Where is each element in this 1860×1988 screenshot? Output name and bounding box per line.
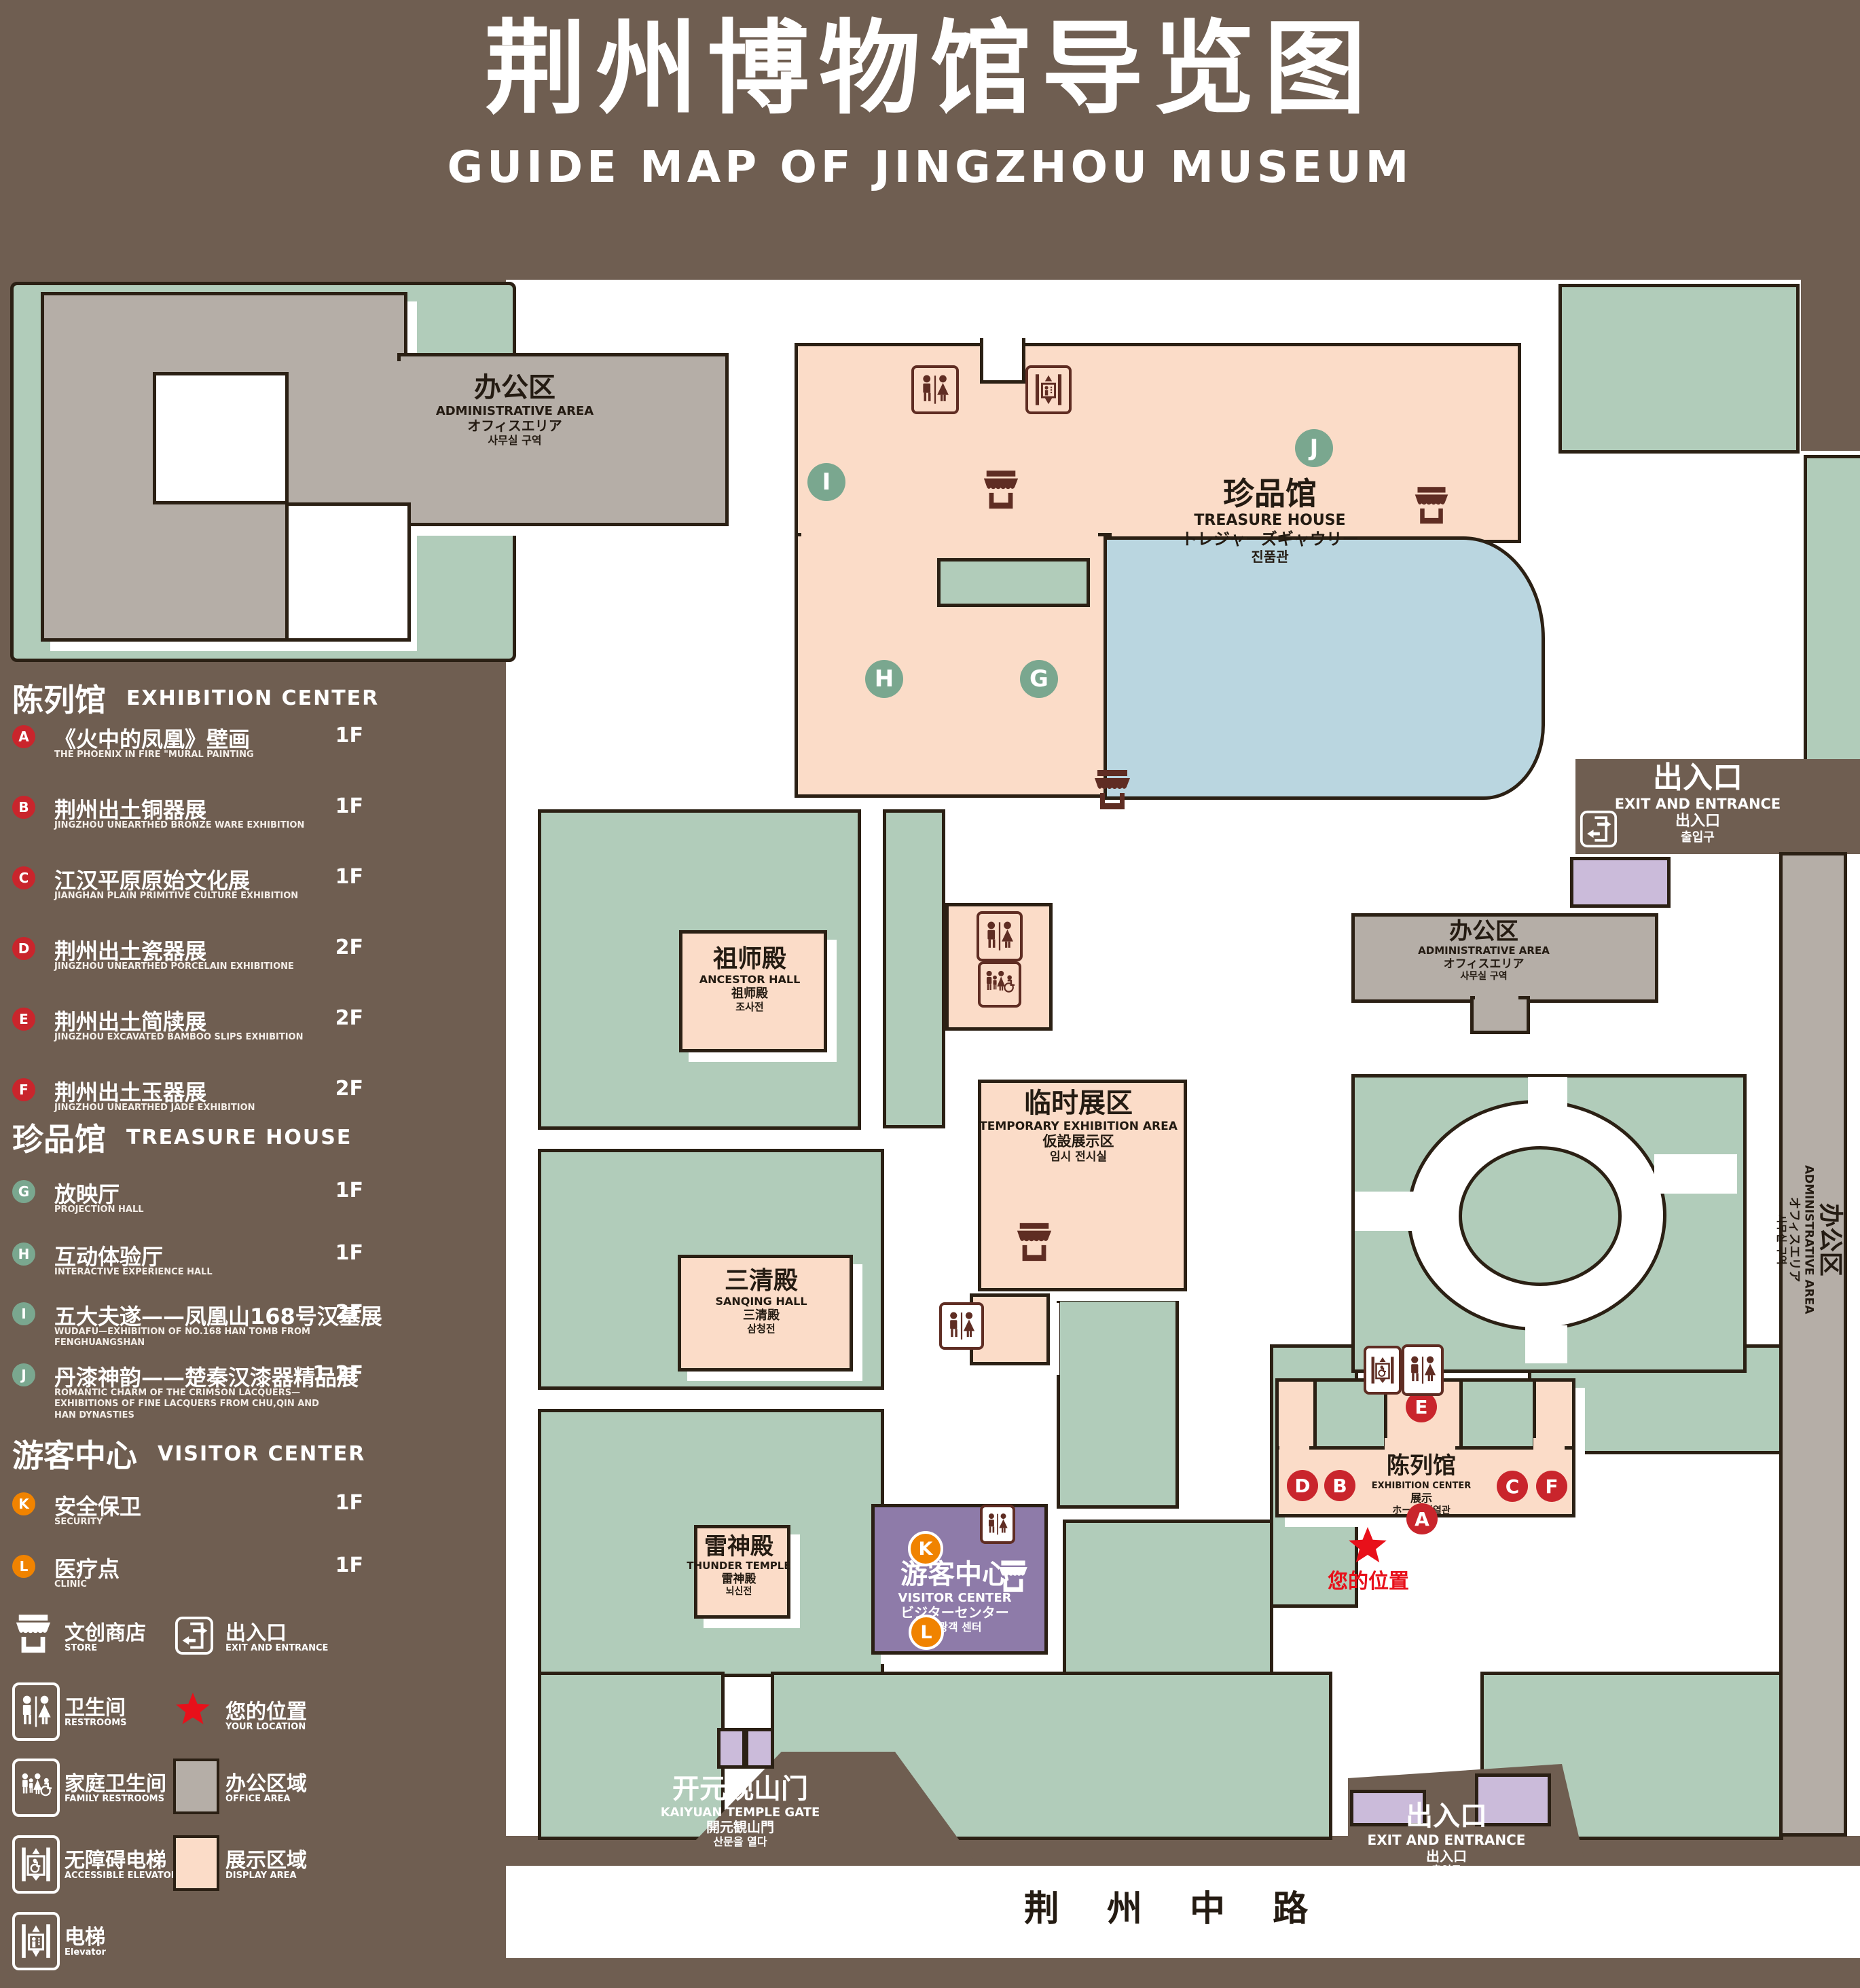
legend-item-C: C 江汉平原原始文化展 JIANGHAN PLAIN PRIMITIVE CUL… xyxy=(12,866,360,889)
exhibition-seam-1 xyxy=(1279,1438,1309,1454)
page-subtitle: GUIDE MAP OF JINGZHOU MUSEUM xyxy=(0,143,1860,194)
restrooms-icon xyxy=(980,1505,1015,1544)
family-restrooms-icon xyxy=(12,1759,60,1817)
office-area-swatch xyxy=(173,1759,219,1814)
map-marker-K: K xyxy=(908,1531,943,1566)
family-restrooms-icon xyxy=(978,961,1021,1008)
background-corner xyxy=(1801,280,1860,451)
legend-section-treasure-house: 珍品馆 TREASURE HOUSE xyxy=(12,1115,352,1160)
legend-item-G: G 放映厅 PROJECTION HALL 1F xyxy=(12,1180,360,1203)
lawn-center-strip xyxy=(883,809,945,1128)
your-location-star-icon xyxy=(1348,1526,1387,1564)
gate-pillar-left xyxy=(717,1728,746,1769)
legend-location-sublabel: YOUR LOCATION xyxy=(225,1722,306,1732)
map-marker-B: B xyxy=(1324,1470,1355,1501)
admin-courtyard-1 xyxy=(153,372,289,504)
map-marker-I: I xyxy=(807,463,845,501)
store-icon xyxy=(1092,769,1133,815)
admin-courtyard-2 xyxy=(285,502,411,642)
map-marker-G: G xyxy=(1020,660,1058,698)
legend-exit-label: 出入口 xyxy=(225,1616,287,1646)
pond xyxy=(1104,536,1545,800)
your-location-label: 您的位置 xyxy=(1290,1570,1446,1594)
treasure-house-label: 珍品馆 TREASURE HOUSE トレジャーズギャウリー 진품관 xyxy=(1114,475,1426,565)
legend-elevator-label: 电梯 xyxy=(65,1920,105,1950)
legend-display-area-label: 展示区域 xyxy=(225,1843,307,1873)
accessible-elevator-icon xyxy=(1364,1346,1402,1395)
exit-top-label: 出入口 EXIT AND ENTRANCE 出入口 출입구 xyxy=(1589,760,1806,845)
garden-path-south xyxy=(1525,1325,1567,1363)
garden-island xyxy=(1459,1146,1622,1286)
legend-store-label: 文创商店 xyxy=(65,1616,146,1646)
legend-exit-sublabel: EXIT AND ENTRANCE xyxy=(225,1643,328,1653)
restrooms-icon xyxy=(977,911,1023,961)
display-area-swatch xyxy=(173,1835,219,1891)
restrooms-icon xyxy=(1402,1344,1444,1396)
exhibition-courtyard-right xyxy=(1459,1378,1536,1456)
gate-building-topright xyxy=(1570,857,1671,908)
restrooms-icon xyxy=(12,1682,60,1741)
elevator-icon xyxy=(12,1912,60,1970)
garden-path-east xyxy=(1654,1154,1737,1194)
treasure-top-notch xyxy=(980,338,1025,384)
road-label: 荆 州 中 路 xyxy=(971,1889,1379,1930)
legend-family-restrooms-label: 家庭卫生间 xyxy=(65,1767,166,1797)
legend-accessible-elevator-sublabel: ACCESSIBLE ELEVATOR xyxy=(65,1871,178,1881)
lawn-top-right xyxy=(1558,284,1800,454)
map-marker-F: F xyxy=(1536,1471,1567,1502)
restrooms-icon xyxy=(911,365,959,414)
lawn-right-strip xyxy=(1804,455,1860,766)
store-icon xyxy=(1412,483,1451,531)
legend-item-K: K 安全保卫 SECURITY 1F xyxy=(12,1492,360,1515)
legend-location-label: 您的位置 xyxy=(225,1695,307,1725)
legend-item-J: J 丹漆神韵——楚秦汉漆器精品展 ROMANTIC CHARM OF THE C… xyxy=(12,1363,360,1386)
guide-map-poster: 荆州博物馆导览图 GUIDE MAP OF JINGZHOU MUSEUM 办公… xyxy=(0,0,1860,1988)
legend-item-F: F 荆州出土玉器展 JINGZHOU UNEARTHED JADE EXHIBI… xyxy=(12,1078,360,1101)
map-marker-A: A xyxy=(1406,1503,1438,1534)
legend-elevator-sublabel: Elevator xyxy=(65,1947,106,1957)
legend-section-exhibition-center: 陈列馆 EXHIBITION CENTER xyxy=(12,676,379,720)
ancestor-hall-label: 祖师殿 ANCESTOR HALL 祖师殿 조사전 xyxy=(648,945,852,1013)
accessible-elevator-icon xyxy=(12,1835,60,1894)
legend-office-area-label: 办公区域 xyxy=(225,1767,307,1797)
legend-display-area-sublabel: DISPLAY AREA xyxy=(225,1871,297,1881)
admin-right-label: 办公区 ADMINISTRATIVE AREA オフィスエリア 사무실 구역 xyxy=(1775,1104,1844,1376)
gate-pillar-right xyxy=(745,1728,774,1769)
legend-office-area-sublabel: OFFICE AREA xyxy=(225,1794,291,1804)
legend-item-L: L 医疗点 CLINIC 1F xyxy=(12,1555,360,1578)
sanqing-hall-label: 三清殿 SANQING HALL 三清殿 삼청전 xyxy=(659,1267,863,1335)
admin-mid-seam xyxy=(1475,986,1518,1005)
legend-item-D: D 荆州出土瓷器展 JINGZHOU UNEARTHED PORCELAIN E… xyxy=(12,937,360,960)
restrooms-icon xyxy=(939,1302,984,1350)
map-marker-D: D xyxy=(1287,1470,1318,1501)
exit-icon xyxy=(173,1610,215,1661)
store-icon xyxy=(1015,1222,1054,1266)
elevator-icon xyxy=(1025,365,1072,414)
admin-mid-label: 办公区 ADMINISTRATIVE AREA オフィスエリア 사무실 구역 xyxy=(1382,918,1586,982)
lawn-mid-small xyxy=(1057,1298,1179,1509)
map-marker-C: C xyxy=(1497,1471,1528,1502)
store-icon xyxy=(981,470,1021,513)
legend-item-A: A 《火中的凤凰》壁画 THE PHOENIX IN FIRE "MURAL P… xyxy=(12,725,360,748)
temporary-exhibition-label: 临时展区 TEMPORARY EXHIBITION AREA 仮設展示区 임시 … xyxy=(977,1088,1180,1164)
admin-topleft-label: 办公区 ADMINISTRATIVE AREA オフィスエリア 사무실 구역 xyxy=(372,372,657,447)
legend-item-E: E 荆州出土简牍展 JINGZHOU EXCAVATED BAMBOO SLIP… xyxy=(12,1008,360,1031)
lawn-mid-south xyxy=(1063,1520,1273,1677)
map-marker-H: H xyxy=(865,660,903,698)
map-marker-L: L xyxy=(909,1615,944,1650)
legend-family-restrooms-sublabel: FAMILY RESTROOMS xyxy=(65,1794,164,1804)
treasure-hedge xyxy=(937,558,1090,607)
store-icon xyxy=(997,1556,1029,1600)
location-star-icon xyxy=(175,1692,211,1726)
legend-restrooms-label: 卫生间 xyxy=(65,1691,126,1720)
legend-restrooms-sublabel: RESTROOMS xyxy=(65,1718,127,1728)
legend-item-H: H 互动体验厅 INTERACTIVE EXPERIENCE HALL 1F xyxy=(12,1242,360,1266)
garden-path-west xyxy=(1355,1192,1419,1231)
legend-item-B: B 荆州出土铜器展 JINGZHOU UNEARTHED BRONZE WARE… xyxy=(12,796,360,819)
legend-store-sublabel: STORE xyxy=(65,1643,97,1653)
store-icon xyxy=(12,1610,54,1661)
legend-accessible-elevator-label: 无障碍电梯 xyxy=(65,1843,166,1873)
treasure-house-seam xyxy=(801,517,1098,555)
garden-path-north xyxy=(1528,1077,1567,1111)
legend-item-I: I 五大夫遂——凤凰山168号汉墓展 WUDAFU—EXHIBITION OF … xyxy=(12,1302,360,1325)
kaiyuan-gate-label: 开元观山门 KAIYUAN TEMPLE GATE 開元観山門 산문을 열다 xyxy=(638,1773,842,1849)
map-marker-J: J xyxy=(1295,429,1333,467)
thunder-temple-label: 雷神殿 THUNDER TEMPLE 雷神殿 뇌신전 xyxy=(654,1533,824,1597)
exhibition-seam-3 xyxy=(1533,1438,1565,1454)
page-title: 荆州博物馆导览图 xyxy=(0,10,1860,130)
legend-section-visitor-center: 游客中心 VISITOR CENTER xyxy=(12,1431,365,1476)
